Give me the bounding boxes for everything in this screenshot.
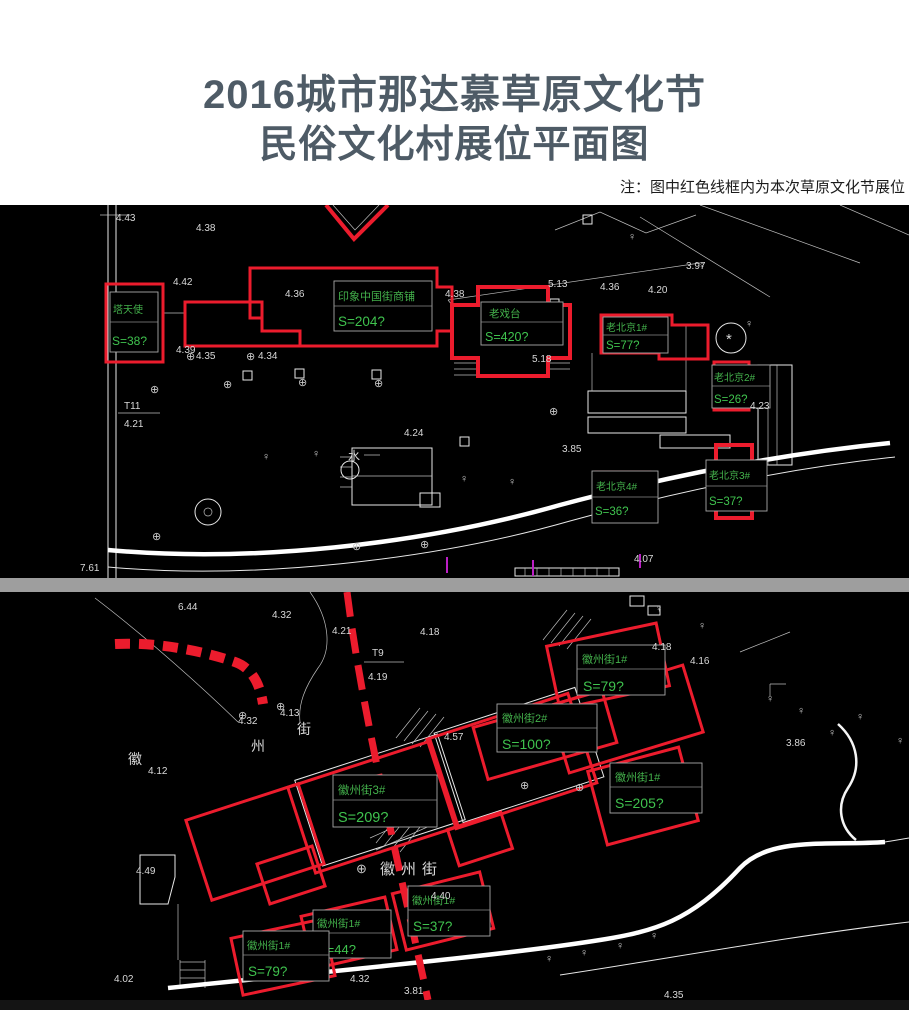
booth-label: 塔天使 S=38? <box>110 292 158 352</box>
booth-area: S=38? <box>112 334 147 348</box>
booth-label: 徽州街3# S=209? <box>333 775 437 827</box>
booth-area: S=77? <box>606 340 640 352</box>
manhole-icon: ⊕ <box>374 378 383 390</box>
dashed-wall-line <box>115 644 263 704</box>
booth-name: 塔天使 <box>113 303 143 316</box>
bottom-site-plan: 徽州街1# S=79? 徽州街2# S=100? 徽州街3# S=209? 徽州… <box>0 592 909 1000</box>
manhole-icon: ⊕ <box>420 539 429 551</box>
tree-icon: ♀ <box>655 603 663 615</box>
elevation-label: 3.86 <box>786 738 806 749</box>
elevation-label: 4.16 <box>690 656 710 667</box>
elevation-label: 4.20 <box>648 285 668 296</box>
tree-icon: ♀ <box>896 735 904 747</box>
booth-label: 徽州街1# S=79? <box>243 931 329 981</box>
booth-name: 老戏台 <box>489 307 521 320</box>
booth-name: 徽州街3# <box>338 783 386 797</box>
booth-name: 徽州街1# <box>615 770 661 784</box>
booth-area: S=36? <box>595 506 629 518</box>
manhole-icon: ⊕ <box>150 384 159 396</box>
booth-label: 老戏台 S=420? <box>481 302 563 345</box>
elevation-label: 4.32 <box>272 610 292 621</box>
tree-icon: ♀ <box>460 473 468 485</box>
elevation-label: 4.35 <box>664 990 684 1000</box>
top-site-plan-panel: 塔天使 S=38? 印象中国街商铺 S=204? 老戏台 S=420? 老北京1… <box>0 205 909 578</box>
bottom-border-bar <box>0 1000 909 1010</box>
elevation-label: 4.38 <box>445 289 465 300</box>
elevation-label: 7.61 <box>80 563 100 574</box>
booth-area: S=204? <box>338 314 385 329</box>
elevation-label: 4.49 <box>136 866 156 877</box>
festival-plan-page: 2016城市那达慕草原文化节 民俗文化村展位平面图 注：图中红色线框内为本次草原… <box>0 0 909 1010</box>
elevation-label: 4.36 <box>285 289 305 300</box>
street-char: 徽 <box>128 751 142 767</box>
elevation-label: 4.43 <box>116 213 136 224</box>
booth-name: 老北京2# <box>714 371 756 384</box>
star-mark-icon: * <box>726 331 732 348</box>
tree-icon: ♀ <box>797 705 805 717</box>
booth-area: S=79? <box>583 678 624 694</box>
tree-icon: ♀ <box>698 620 706 632</box>
booth-label: 徽州街1# S=205? <box>610 763 702 813</box>
water-label: 水 <box>348 449 360 463</box>
top-site-plan: 塔天使 S=38? 印象中国街商铺 S=204? 老戏台 S=420? 老北京1… <box>0 205 909 578</box>
booth-name: 徽州街1# <box>317 917 360 930</box>
tree-icon: ♀ <box>745 318 753 330</box>
booth-name: 徽州街1# <box>247 939 290 952</box>
booth-area: S=209? <box>338 810 388 826</box>
booth-label: 徽州街2# S=100? <box>497 704 597 752</box>
booth-area: S=37? <box>413 919 452 934</box>
elevation-label: 4.24 <box>404 428 424 439</box>
elevation-label: 5.18 <box>532 354 552 365</box>
manhole-icon: ⊕ <box>298 377 307 389</box>
booth-area: S=100? <box>502 736 551 752</box>
tree-icon: ♀ <box>508 476 516 488</box>
elevation-label: 4.21 <box>332 626 352 637</box>
booth-outline-entry <box>326 205 388 239</box>
booth-name: 徽州街2# <box>502 711 548 725</box>
legend-note: 注：图中红色线框内为本次草原文化节展位 <box>620 176 905 197</box>
booth-label: 印象中国街商铺 S=204? <box>334 281 432 331</box>
elevation-label: 3.81 <box>404 986 424 997</box>
tree-icon: ♀ <box>650 930 658 942</box>
elevation-label: 4.18 <box>652 642 672 653</box>
station-label: T9 <box>372 648 384 659</box>
manhole-icon: ⊕ <box>152 531 161 543</box>
manhole-icon: ⊕ <box>352 541 361 553</box>
elevation-label: 4.32 <box>350 974 370 985</box>
booth-name: 印象中国街商铺 <box>338 289 415 303</box>
elevation-label: 4.07 <box>634 554 654 565</box>
utility-marks <box>447 554 640 576</box>
manhole-icon: ⊕ <box>549 406 558 418</box>
elevation-label: 5.13 <box>548 279 568 290</box>
manhole-icon: ⊕ <box>223 379 232 391</box>
bottom-site-plan-panel: 徽州街1# S=79? 徽州街2# S=100? 徽州街3# S=209? 徽州… <box>0 592 909 1000</box>
street-char: 州 <box>251 738 265 754</box>
tree-icon: ♀ <box>262 451 270 463</box>
manhole-icon: ⊕ <box>186 351 195 363</box>
elevation-label: 4.42 <box>173 277 193 288</box>
booth-area: S=79? <box>248 964 287 979</box>
booth-area: S=420? <box>485 330 528 344</box>
booth-area: S=37? <box>709 496 743 508</box>
elevation-label: 4.02 <box>114 974 134 985</box>
booth-area: S=26? <box>714 394 748 406</box>
page-title: 2016城市那达慕草原文化节 民俗文化村展位平面图 <box>0 70 909 170</box>
elevation-label: 3.85 <box>562 444 582 455</box>
cad-linework <box>100 205 909 578</box>
station-label: T11 <box>124 401 141 412</box>
tree-icon: ♀ <box>698 260 706 272</box>
station-elevation: 4.21 <box>124 419 144 430</box>
manhole-icon: ⊕ <box>238 710 247 722</box>
booth-label: 老北京4# S=36? <box>592 471 658 523</box>
booth-name: 老北京3# <box>709 469 751 482</box>
elevation-label: 4.40 <box>431 891 451 902</box>
booth-area: S=205? <box>615 795 664 811</box>
booth-label: 老北京1# S=77? <box>603 317 668 353</box>
manhole-icon: ⊕ <box>575 782 584 794</box>
booth-name: 老北京1# <box>606 321 648 334</box>
booth-name: 老北京4# <box>596 480 638 493</box>
elevation-label: 4.35 <box>196 351 216 362</box>
street-char: 街 <box>297 721 311 737</box>
tree-icon: ♀ <box>580 947 588 959</box>
title-line-2: 民俗文化村展位平面图 <box>0 121 909 170</box>
booth-outline-china-street-left <box>185 302 300 346</box>
manhole-icon: ⊕ <box>520 780 529 792</box>
tree-icon: ♀ <box>616 940 624 952</box>
tree-icon: ♀ <box>545 953 553 965</box>
panel-divider <box>0 578 909 592</box>
manhole-icon: ⊕ <box>276 701 285 713</box>
tree-icon: ♀ <box>628 231 636 243</box>
elevation-label: 4.38 <box>196 223 216 234</box>
tree-icon: ♀ <box>766 693 774 705</box>
station-elevation: 4.19 <box>368 672 388 683</box>
elevation-label: 4.23 <box>750 401 770 412</box>
tree-icon: ♀ <box>856 711 864 723</box>
tree-symbols: ⊕ ⊕ ⊕ ⊕ ⊕ ⊕ ⊕ ⊕ ⊕ ⊕ ♀ ♀ ♀ ♀ ♀ ♀ ♀ <box>150 231 753 553</box>
elevation-label: 4.36 <box>600 282 620 293</box>
tree-icon: ♀ <box>312 448 320 460</box>
booth-labels: 徽州街1# S=79? 徽州街2# S=100? 徽州街3# S=209? 徽州… <box>243 645 702 981</box>
booth-name: 徽州街1# <box>582 652 628 666</box>
elevation-label: 4.18 <box>420 627 440 638</box>
elevation-label: 4.34 <box>258 351 278 362</box>
title-line-1: 2016城市那达慕草原文化节 <box>0 70 909 121</box>
street-name-label: 徽州街 <box>380 861 443 878</box>
elevation-label: 4.57 <box>444 732 464 743</box>
manhole-icon: ⊕ <box>246 351 255 363</box>
elevation-label: 6.44 <box>178 602 198 613</box>
manhole-icon: ⊕ <box>356 861 367 876</box>
tree-icon: ♀ <box>828 727 836 739</box>
booth-outline-block-a <box>186 784 324 900</box>
booth-label: 老北京3# S=37? <box>706 460 767 511</box>
elevation-label: 4.12 <box>148 766 168 777</box>
